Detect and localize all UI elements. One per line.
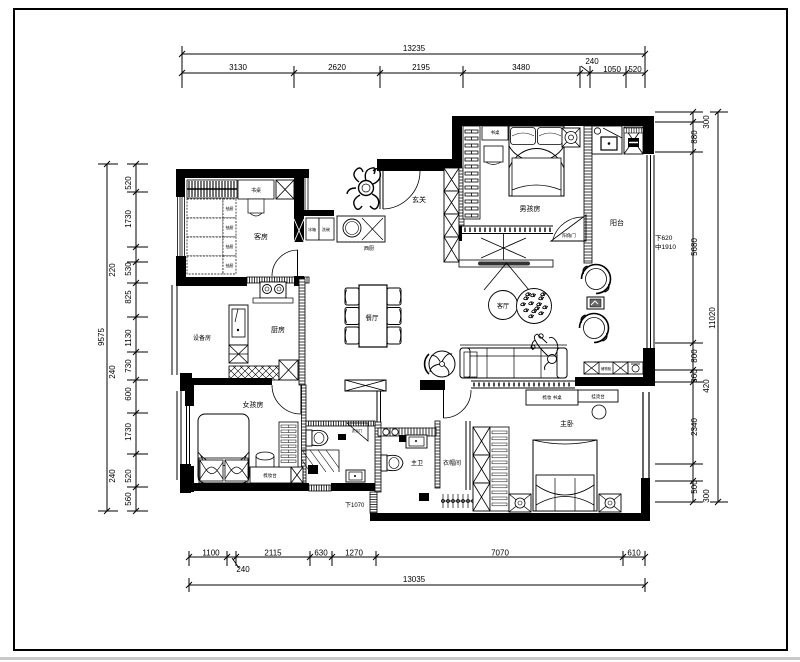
svg-text:3130: 3130 — [229, 63, 247, 72]
svg-text:男孩房: 男孩房 — [520, 204, 541, 213]
svg-text:淤浴门: 淤浴门 — [352, 428, 363, 433]
svg-text:610: 610 — [627, 549, 641, 558]
svg-text:2115: 2115 — [264, 549, 282, 558]
svg-text:520: 520 — [628, 65, 642, 74]
svg-text:抽屉: 抽屉 — [226, 205, 234, 211]
svg-text:800: 800 — [690, 349, 699, 363]
svg-text:阳台: 阳台 — [610, 218, 624, 227]
svg-text:1270: 1270 — [345, 549, 363, 558]
svg-text:设备房: 设备房 — [193, 334, 211, 342]
svg-text:主卫: 主卫 — [411, 459, 423, 467]
svg-text:560: 560 — [124, 492, 133, 506]
svg-text:240: 240 — [585, 57, 599, 66]
svg-text:女孩房: 女孩房 — [243, 400, 264, 409]
svg-text:600: 600 — [124, 387, 133, 401]
svg-text:梳妆台: 梳妆台 — [263, 472, 277, 479]
svg-text:2340: 2340 — [690, 418, 699, 436]
svg-text:餐厅: 餐厅 — [366, 313, 380, 322]
svg-text:240: 240 — [236, 565, 250, 574]
svg-text:5680: 5680 — [690, 238, 699, 256]
svg-text:240: 240 — [108, 365, 117, 379]
svg-text:抽屉: 抽屉 — [226, 262, 234, 268]
svg-text:825: 825 — [124, 290, 133, 304]
svg-text:220: 220 — [108, 263, 117, 277]
svg-text:抽屉: 抽屉 — [226, 243, 234, 249]
svg-text:冰箱: 冰箱 — [308, 226, 316, 232]
svg-text:7070: 7070 — [491, 549, 509, 558]
svg-text:730: 730 — [124, 359, 133, 373]
svg-text:抽屉: 抽屉 — [226, 224, 234, 230]
svg-text:1050: 1050 — [603, 65, 621, 74]
svg-text:玄关: 玄关 — [412, 195, 426, 204]
svg-text:530: 530 — [124, 262, 133, 276]
svg-text:9575: 9575 — [97, 328, 106, 346]
svg-text:厨房: 厨房 — [271, 325, 285, 334]
svg-text:西厨: 西厨 — [364, 246, 374, 252]
svg-text:880: 880 — [690, 130, 699, 144]
svg-text:13035: 13035 — [403, 575, 426, 584]
svg-text:1130: 1130 — [124, 329, 133, 347]
svg-text:420: 420 — [702, 379, 711, 393]
svg-text:500: 500 — [690, 480, 699, 494]
svg-text:挂烫台: 挂烫台 — [591, 393, 605, 400]
svg-text:11020: 11020 — [708, 307, 717, 329]
svg-text:1730: 1730 — [124, 423, 133, 441]
svg-text:下620: 下620 — [655, 234, 673, 242]
svg-text:630: 630 — [314, 549, 328, 558]
svg-text:储物柜: 储物柜 — [601, 366, 612, 371]
svg-text:1100: 1100 — [202, 549, 220, 558]
svg-text:300: 300 — [702, 115, 711, 129]
svg-text:520: 520 — [124, 176, 133, 190]
svg-text:2195: 2195 — [412, 63, 430, 72]
svg-text:衣帽间: 衣帽间 — [443, 459, 461, 467]
svg-text:520: 520 — [124, 469, 133, 483]
svg-text:1730: 1730 — [124, 210, 133, 228]
svg-text:240: 240 — [108, 469, 117, 483]
svg-text:梳妆 书桌: 梳妆 书桌 — [542, 394, 562, 401]
svg-text:书桌: 书桌 — [251, 187, 261, 194]
svg-text:洗碗: 洗碗 — [322, 226, 330, 232]
svg-text:主卧: 主卧 — [560, 419, 574, 428]
svg-text:300: 300 — [702, 489, 711, 503]
svg-text:3480: 3480 — [512, 63, 530, 72]
svg-text:360: 360 — [690, 369, 699, 383]
svg-text:下1070: 下1070 — [345, 502, 365, 509]
svg-text:2620: 2620 — [328, 63, 346, 72]
svg-text:书桌: 书桌 — [491, 129, 500, 136]
svg-text:阳角门: 阳角门 — [562, 232, 576, 239]
svg-text:中1910: 中1910 — [655, 242, 676, 251]
svg-text:客房: 客房 — [254, 232, 268, 241]
svg-text:客厅: 客厅 — [497, 302, 509, 310]
svg-text:13235: 13235 — [403, 44, 426, 53]
